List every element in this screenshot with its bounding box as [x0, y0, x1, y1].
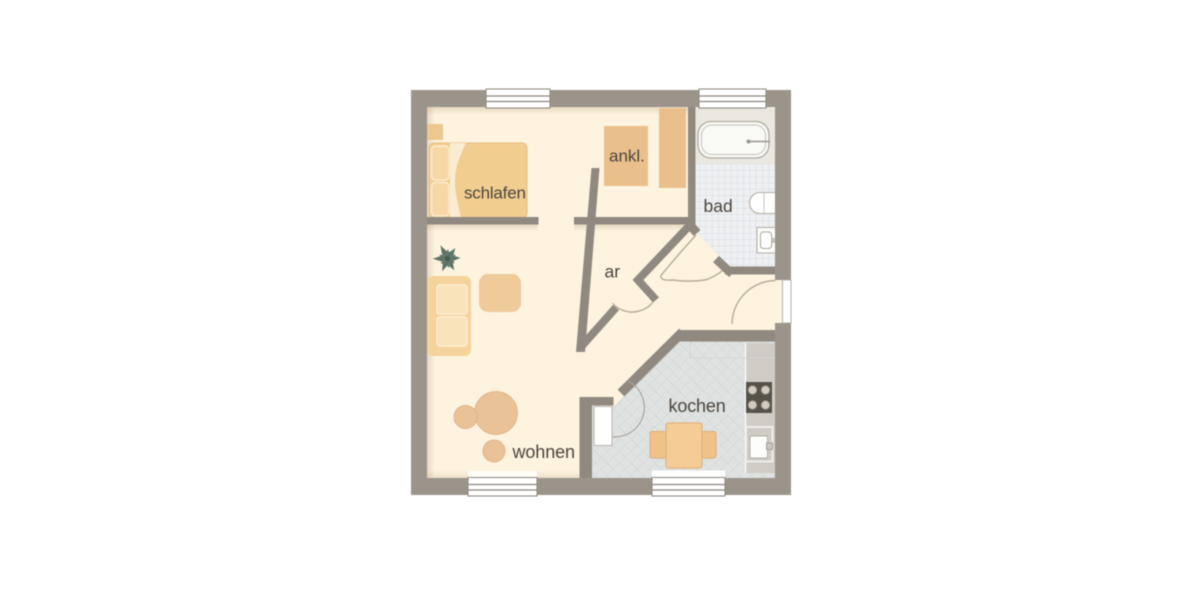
svg-text:wohnen: wohnen	[512, 442, 575, 462]
svg-text:bad: bad	[704, 196, 733, 216]
svg-text:kochen: kochen	[669, 396, 726, 416]
svg-text:ankl.: ankl.	[609, 147, 645, 166]
svg-text:schlafen: schlafen	[464, 184, 526, 203]
svg-text:ar: ar	[605, 262, 621, 282]
